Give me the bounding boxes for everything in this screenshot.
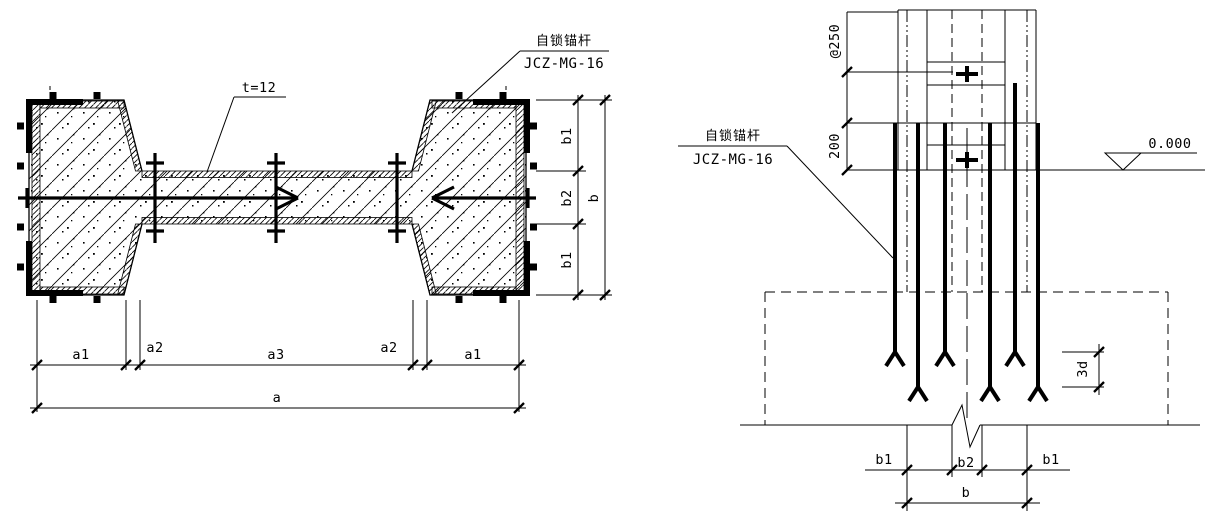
dim-b1-left: b1 (875, 452, 892, 468)
dim-a2-left: a2 (146, 340, 163, 356)
right-anchor-label-cn: 自锁锚杆 (705, 128, 761, 144)
dim-b2-left-view: b2 (559, 189, 575, 206)
dim-3d: 3d (1075, 360, 1091, 377)
dim-b-total-right-view: b (962, 485, 971, 501)
dim-b2-right-view: b2 (957, 455, 974, 471)
dim-b-total-left-view: b (586, 194, 602, 203)
drawing-canvas: t=12 自锁锚杆 JCZ-MG-16 a1 a2 (0, 0, 1212, 514)
dim-a1-right: a1 (464, 347, 481, 363)
web-thickness-label: t=12 (242, 80, 277, 96)
anchor-detail-drawing: t=12 自锁锚杆 JCZ-MG-16 a1 a2 (0, 0, 1212, 514)
level-value: 0.000 (1148, 136, 1191, 152)
dim-a-total: a (273, 390, 282, 406)
dim-a3: a3 (267, 347, 284, 363)
dim-b1-bottom: b1 (559, 251, 575, 268)
right-anchor-label-code: JCZ-MG-16 (693, 152, 773, 168)
dim-200: 200 (827, 133, 843, 159)
dim-spacing-250: @250 (827, 24, 843, 59)
background (0, 0, 1212, 514)
left-anchor-label-cn: 自锁锚杆 (536, 33, 592, 49)
dim-a1-left: a1 (72, 347, 89, 363)
dim-a2-right: a2 (380, 340, 397, 356)
dim-b1-right: b1 (1042, 452, 1059, 468)
left-anchor-label-code: JCZ-MG-16 (524, 56, 604, 72)
dim-b1-top: b1 (559, 127, 575, 144)
